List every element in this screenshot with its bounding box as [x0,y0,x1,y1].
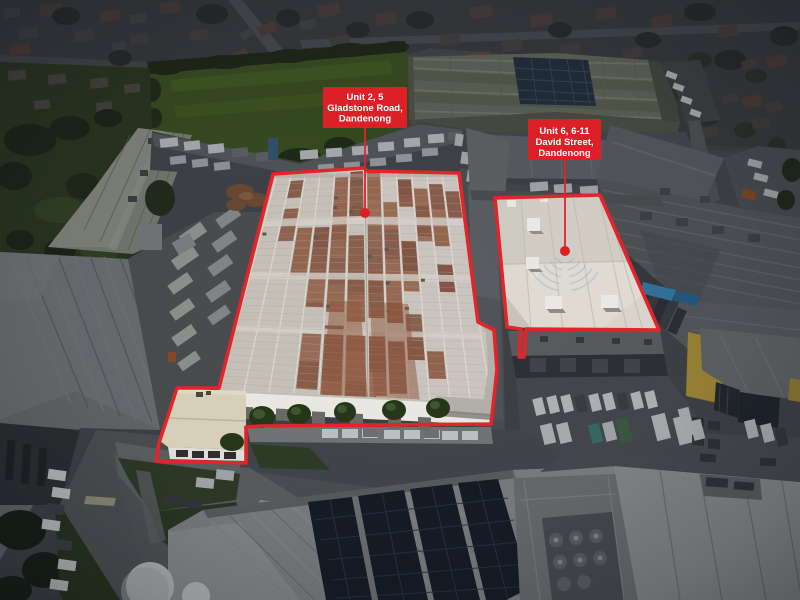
svg-text:David Street,: David Street, [535,137,593,148]
svg-text:Dandenong: Dandenong [339,114,391,125]
svg-text:Unit 6, 6-11: Unit 6, 6-11 [539,126,590,137]
svg-text:Gladstone Road,: Gladstone Road, [327,103,402,114]
svg-text:Unit 2, 5: Unit 2, 5 [347,92,385,103]
svg-text:Dandenong: Dandenong [538,148,590,159]
